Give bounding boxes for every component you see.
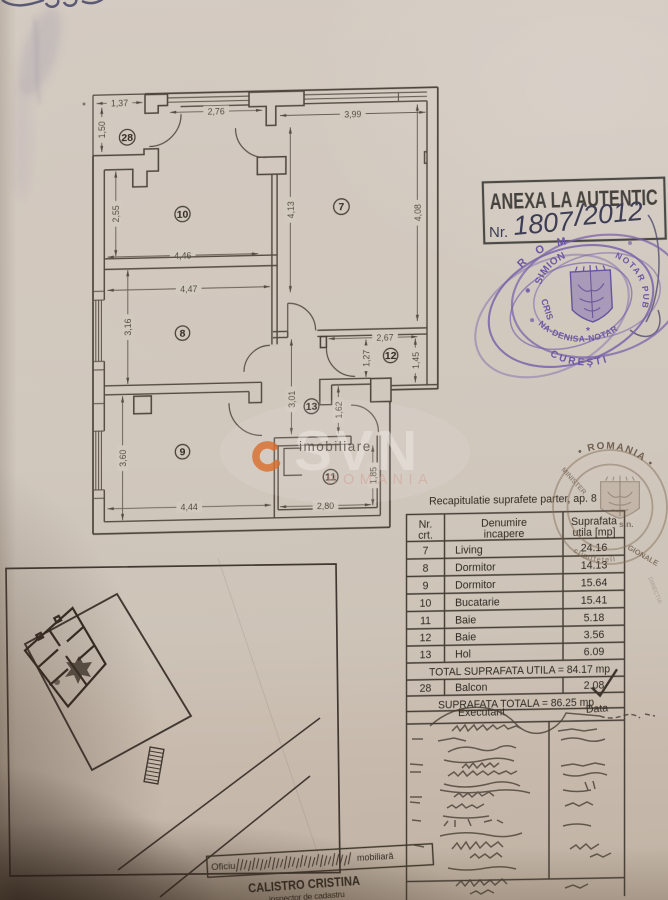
svg-text:4,08: 4,08 bbox=[413, 204, 423, 221]
svg-text:1,50: 1,50 bbox=[97, 121, 107, 138]
svg-text:2,55: 2,55 bbox=[111, 205, 121, 222]
svg-text:crt.: crt. bbox=[418, 530, 433, 542]
svg-text:Baie: Baie bbox=[455, 614, 476, 626]
svg-text:1,37: 1,37 bbox=[111, 98, 128, 108]
svg-text:9: 9 bbox=[423, 580, 429, 592]
svg-text:3,16: 3,16 bbox=[123, 318, 133, 335]
svg-text:1,27: 1,27 bbox=[361, 350, 371, 367]
svg-text:8: 8 bbox=[180, 328, 186, 340]
svg-text:15.64: 15.64 bbox=[581, 577, 608, 589]
svg-text:GIONALE: GIONALE bbox=[626, 543, 660, 568]
svg-text:Nr.: Nr. bbox=[489, 224, 508, 241]
svg-text:10: 10 bbox=[177, 209, 189, 221]
svg-text:10: 10 bbox=[420, 598, 432, 610]
svg-text:8: 8 bbox=[423, 563, 429, 575]
svg-text:Balcon: Balcon bbox=[455, 682, 487, 695]
svg-text:9: 9 bbox=[180, 446, 186, 458]
svg-text:Dormitor: Dormitor bbox=[455, 579, 496, 592]
svg-text:Oficiu: Oficiu bbox=[211, 861, 236, 873]
svg-text:5.18: 5.18 bbox=[584, 612, 605, 624]
svg-text:Bucatarie: Bucatarie bbox=[455, 596, 500, 609]
svg-text:12: 12 bbox=[385, 350, 397, 362]
svg-text:13: 13 bbox=[420, 649, 432, 661]
svg-text:7: 7 bbox=[338, 201, 344, 213]
svg-text:Hol: Hol bbox=[455, 648, 471, 660]
svg-text:4,13: 4,13 bbox=[286, 201, 296, 218]
svg-text:mobiliară: mobiliară bbox=[357, 851, 394, 863]
svg-text:s.n.: s.n. bbox=[619, 519, 634, 529]
svg-text:4,44: 4,44 bbox=[181, 502, 198, 512]
svg-text:Living: Living bbox=[455, 544, 483, 556]
svg-text:2,76: 2,76 bbox=[208, 107, 225, 117]
svg-text:28: 28 bbox=[121, 132, 133, 144]
svg-text:7: 7 bbox=[423, 545, 429, 557]
svg-text:28: 28 bbox=[420, 683, 432, 695]
svg-text:Dormitor: Dormitor bbox=[455, 561, 496, 574]
svg-text:6.09: 6.09 bbox=[584, 646, 605, 658]
svg-text:11: 11 bbox=[420, 615, 431, 627]
svg-text:4,47: 4,47 bbox=[180, 284, 197, 294]
svg-text:3.56: 3.56 bbox=[584, 629, 605, 641]
svg-text:ROMANIA: ROMANIA bbox=[327, 472, 433, 488]
svg-text:DIRECTIA: DIRECTIA bbox=[646, 577, 662, 606]
svg-text:CRIS: CRIS bbox=[539, 298, 555, 322]
svg-text:12: 12 bbox=[420, 632, 432, 644]
svg-text:Data: Data bbox=[586, 702, 609, 716]
svg-text:imobiliare: imobiliare bbox=[299, 439, 372, 454]
svg-text:NA-DENISA-NOTAR: NA-DENISA-NOTAR bbox=[537, 318, 620, 343]
svg-text:4,46: 4,46 bbox=[174, 251, 191, 261]
svg-text:Baie: Baie bbox=[455, 631, 476, 643]
svg-text:15.41: 15.41 bbox=[581, 594, 608, 606]
svg-text:*: * bbox=[586, 326, 590, 337]
svg-text:2,67: 2,67 bbox=[376, 333, 393, 343]
svg-text:CUREŞTI: CUREŞTI bbox=[548, 349, 610, 369]
svg-text:incapere: incapere bbox=[484, 528, 525, 541]
svg-text:1,45: 1,45 bbox=[411, 352, 421, 369]
svg-text:3,99: 3,99 bbox=[344, 109, 361, 119]
svg-text:3,60: 3,60 bbox=[118, 449, 128, 466]
svg-text:Recapitulatie suprafete parter: Recapitulatie suprafete parter, ap. 8 bbox=[429, 493, 597, 508]
svg-text:MINISTER: MINISTER bbox=[560, 467, 588, 497]
